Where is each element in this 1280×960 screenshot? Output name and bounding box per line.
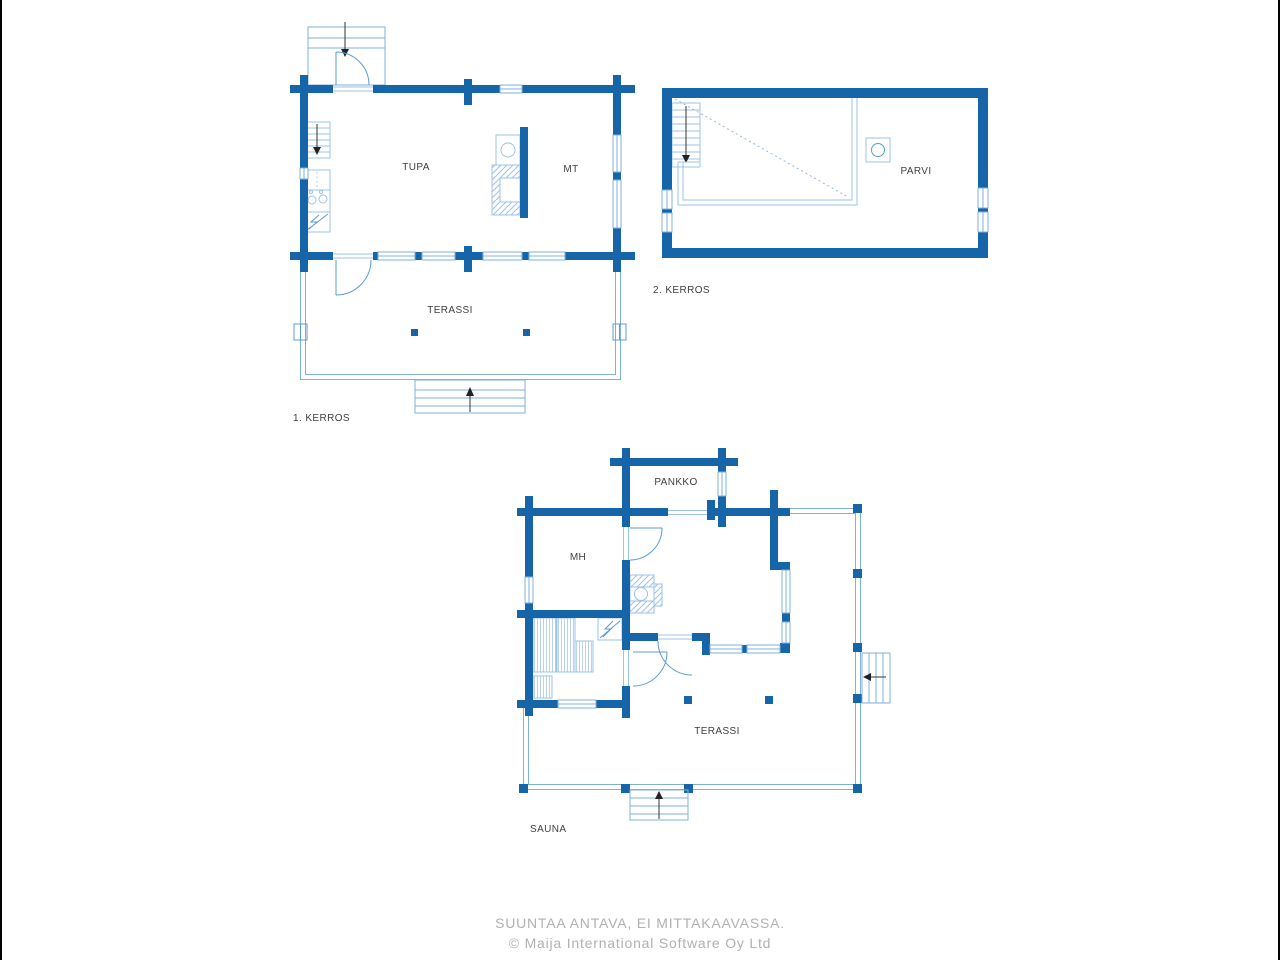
sauna-plan xyxy=(517,448,890,820)
terrace-door-arc xyxy=(333,254,373,295)
floor1-plan xyxy=(290,22,635,413)
floor-label-2-kerros: 2. KERROS xyxy=(653,285,710,296)
room-label-mt: MT xyxy=(563,164,578,175)
terrace-outline xyxy=(301,260,621,380)
sauna-door-arc xyxy=(624,650,668,686)
electric-heater xyxy=(598,618,622,640)
void-dashed-line xyxy=(675,99,848,197)
terrace-steps-right xyxy=(862,653,890,703)
pankko-passage-threshold xyxy=(668,511,707,515)
stove xyxy=(630,575,662,613)
floor1-walls xyxy=(290,75,635,272)
kitchen-counter xyxy=(305,170,330,232)
plan-label-sauna: SAUNA xyxy=(530,824,566,835)
disclaimer-text: SUUNTAA ANTAVA, EI MITTAKAAVASSA. xyxy=(495,915,785,931)
entrance-porch xyxy=(308,27,385,85)
room-label-mh: MH xyxy=(570,552,586,563)
room-label-terassi-1: TERASSI xyxy=(427,305,473,316)
floor-plan-drawing xyxy=(0,0,1280,960)
terrace-steps-bottom xyxy=(630,790,688,820)
copyright-text: © Maija International Software Oy Ltd xyxy=(509,935,771,951)
floor2-plan xyxy=(662,88,988,258)
floor2-walls xyxy=(662,88,988,258)
terrace-side-posts xyxy=(294,324,626,340)
terrace-steps-arrow-icon xyxy=(466,387,474,412)
stairs xyxy=(305,122,330,158)
fireplace xyxy=(492,135,520,215)
room-label-parvi: PARVI xyxy=(900,166,931,177)
floor2-windows xyxy=(662,188,988,232)
sauna-benches xyxy=(533,618,593,698)
mh-door-arc xyxy=(624,527,663,560)
floor-label-1-kerros: 1. KERROS xyxy=(293,413,350,424)
room-label-pankko: PANKKO xyxy=(654,477,697,488)
chimney xyxy=(866,138,890,162)
floor-plan-page: TUPA MT TERASSI 1. KERROS PARVI 2. KERRO… xyxy=(0,0,1280,960)
stairs xyxy=(672,103,700,167)
room-label-tupa: TUPA xyxy=(402,162,430,173)
room-label-terassi-2: TERASSI xyxy=(694,726,740,737)
